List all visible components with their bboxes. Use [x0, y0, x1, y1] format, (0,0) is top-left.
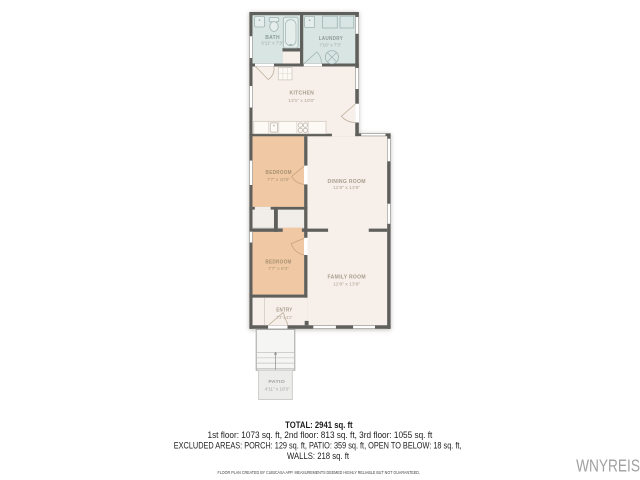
svg-text:WALLS: 218 sq. ft: WALLS: 218 sq. ft — [287, 451, 349, 461]
svg-text:7'7" x 10'5": 7'7" x 10'5" — [267, 177, 290, 182]
svg-text:11'9" x 13'9": 11'9" x 13'9" — [333, 282, 360, 287]
svg-text:4'11" x 10'3": 4'11" x 10'3" — [265, 386, 290, 391]
svg-text:PATIO: PATIO — [268, 379, 285, 384]
svg-text:TOTAL: 2941 sq. ft: TOTAL: 2941 sq. ft — [285, 420, 353, 430]
svg-text:KITCHEN: KITCHEN — [290, 91, 315, 97]
svg-text:EXCLUDED AREAS: PORCH: 129 sq.: EXCLUDED AREAS: PORCH: 129 sq. ft, PATIO… — [174, 441, 462, 451]
svg-text:BEDROOM: BEDROOM — [266, 170, 292, 176]
svg-text:FAMILY ROOM: FAMILY ROOM — [328, 275, 366, 281]
svg-text:7'7" x 9'3": 7'7" x 9'3" — [268, 266, 289, 271]
svg-text:6'11" x 7'3": 6'11" x 7'3" — [261, 41, 283, 46]
svg-text:13'1" x 10'0": 13'1" x 10'0" — [288, 98, 315, 103]
svg-text:WNYREIS: WNYREIS — [576, 455, 640, 475]
svg-text:7'10" x 7'3": 7'10" x 7'3" — [319, 42, 341, 47]
svg-text:11'9" x 13'6": 11'9" x 13'6" — [333, 185, 360, 190]
svg-text:LAUNDRY: LAUNDRY — [319, 36, 344, 42]
svg-text:FLOOR PLAN CREATED BY CUBICASA: FLOOR PLAN CREATED BY CUBICASA APP. MEAS… — [218, 470, 421, 475]
svg-text:ENTRY: ENTRY — [276, 307, 293, 313]
svg-text:7'3" x 4'2": 7'3" x 4'2" — [276, 315, 292, 320]
svg-text:BEDROOM: BEDROOM — [265, 260, 291, 266]
svg-text:1st floor: 1073 sq. ft, 2nd fl: 1st floor: 1073 sq. ft, 2nd floor: 813 s… — [208, 430, 433, 440]
